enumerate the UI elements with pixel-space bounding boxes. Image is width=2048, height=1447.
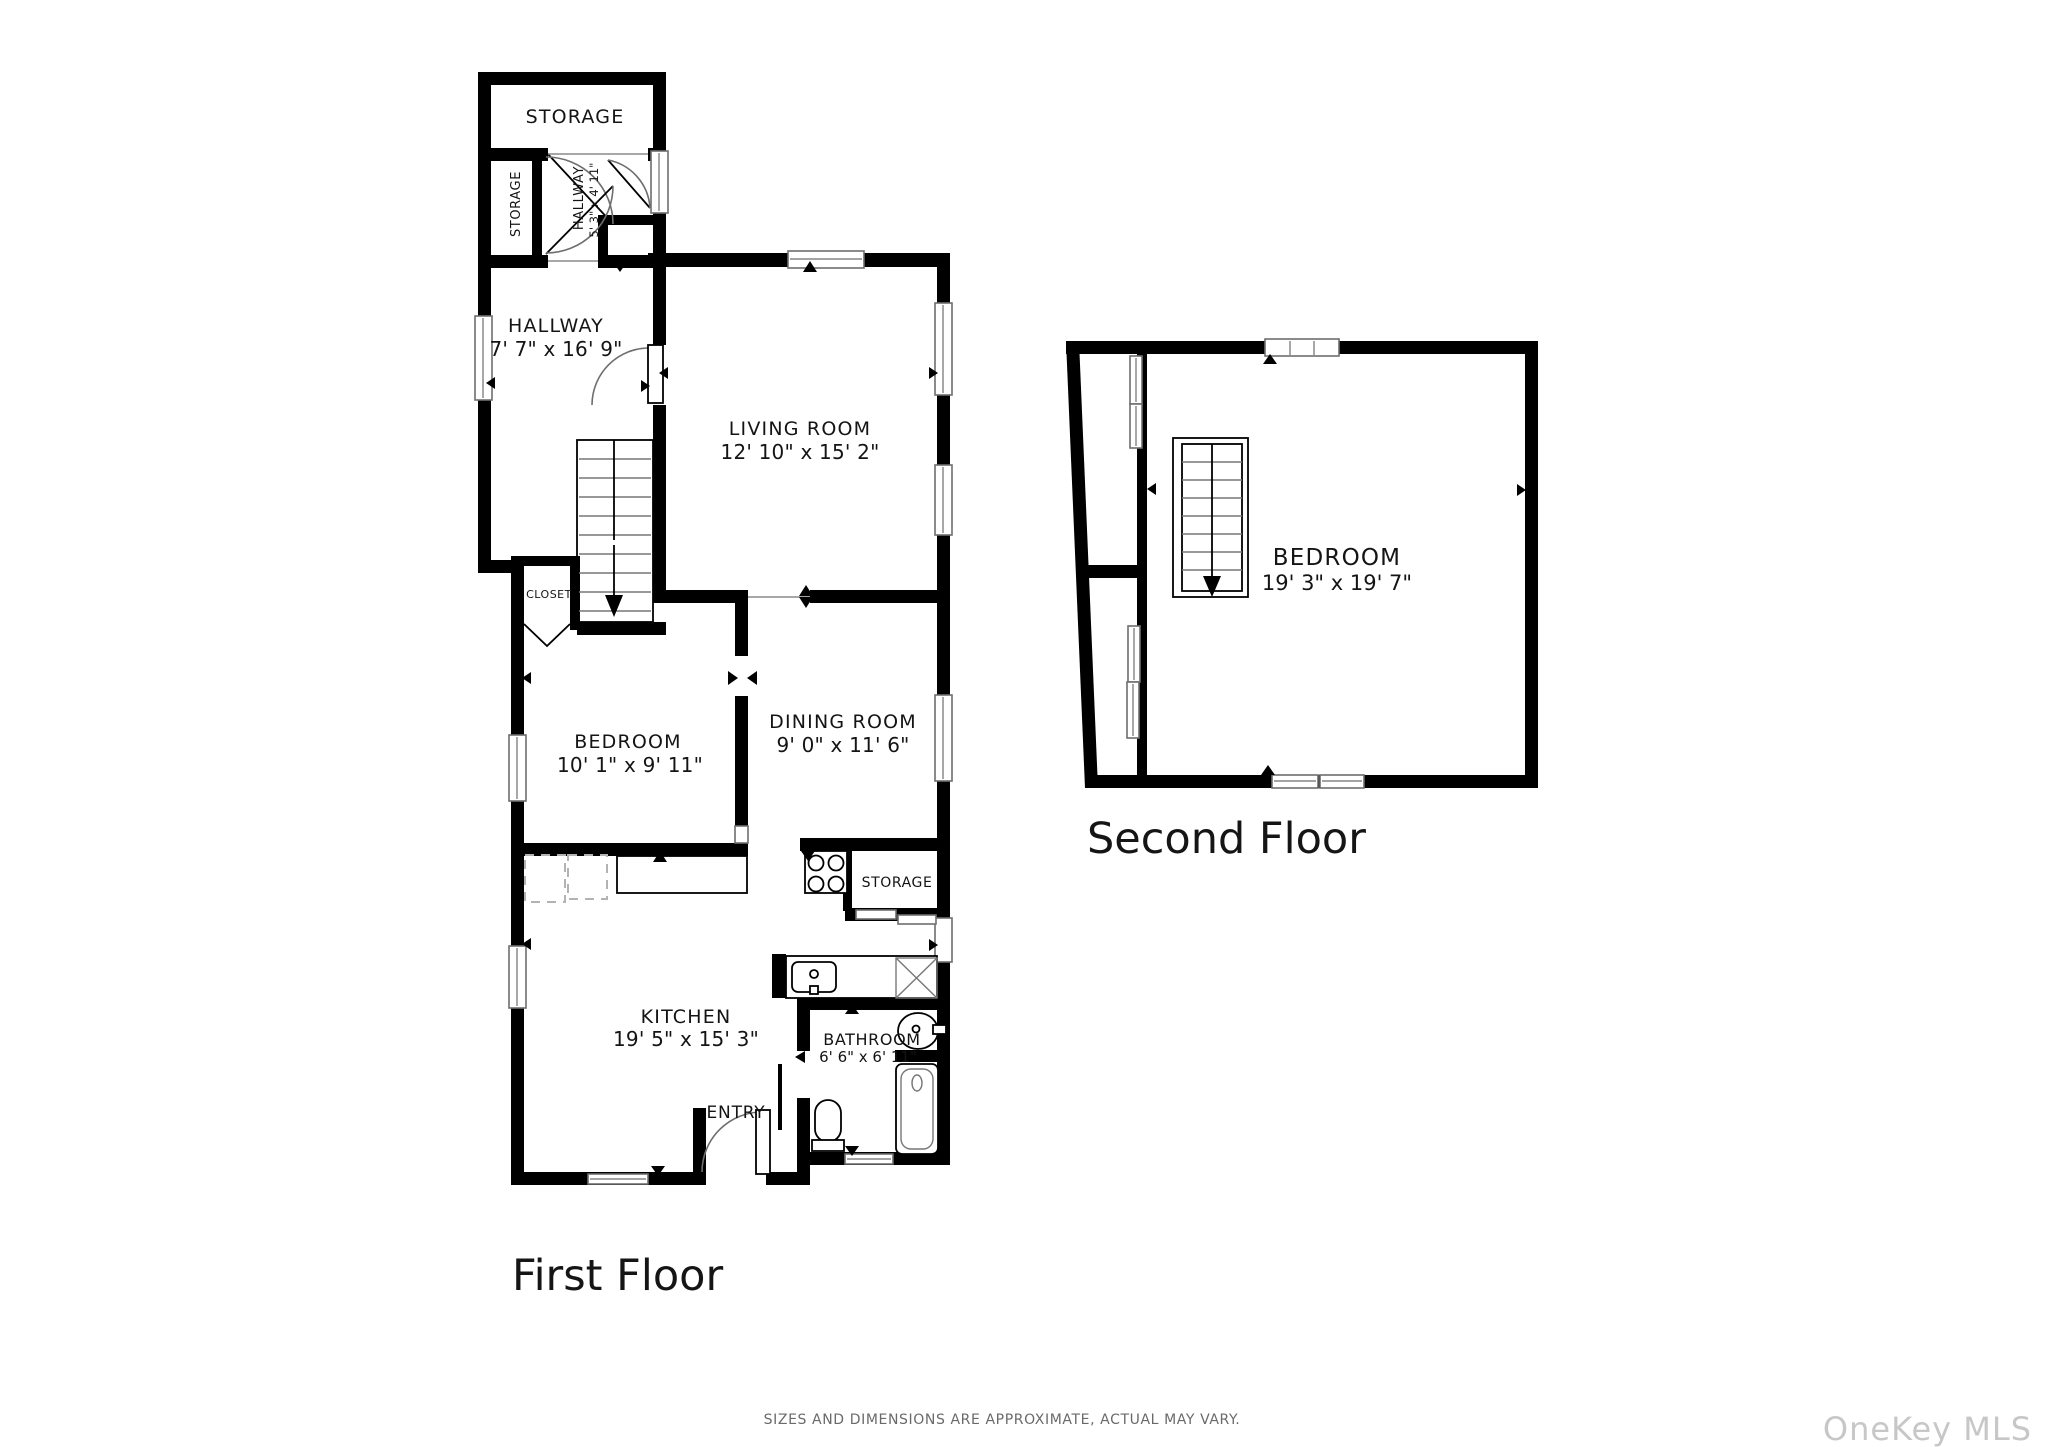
entry-label: ENTRY xyxy=(707,1103,766,1123)
watermark-text: OneKey MLS xyxy=(1823,1410,2032,1447)
upper-hallway-dims: 5' 3" x 4' 11" xyxy=(587,163,601,238)
bedroom-label: BEDROOM xyxy=(574,731,682,753)
disclaimer-text: SIZES AND DIMENSIONS ARE APPROXIMATE, AC… xyxy=(764,1412,1241,1428)
living-room-label: LIVING ROOM xyxy=(729,418,871,440)
page: STORAGE STORAGE HALLWAY 5' 3" x 4' 11" H… xyxy=(0,0,2048,1447)
bedroom2-label: BEDROOM xyxy=(1273,545,1401,571)
bathroom-dims: 6' 6" x 6' 11" xyxy=(819,1048,917,1066)
second-floor-title: Second Floor xyxy=(1087,814,1366,864)
bathroom-label: BATHROOM xyxy=(823,1030,920,1049)
living-room-dims: 12' 10" x 15' 2" xyxy=(721,440,880,464)
kitchen-fixtures xyxy=(525,851,937,998)
second-floor-labels: BEDROOM 19' 3" x 19' 7" xyxy=(1262,545,1412,595)
dining-room-dims: 9' 0" x 11' 6" xyxy=(776,733,909,757)
stairs-icon xyxy=(1173,438,1248,597)
floor-plan-canvas: STORAGE STORAGE HALLWAY 5' 3" x 4' 11" H… xyxy=(0,0,2048,1447)
hallway-label: HALLWAY xyxy=(508,315,604,337)
kitchen-dims: 19' 5" x 15' 3" xyxy=(613,1027,759,1051)
bathtub-icon xyxy=(896,1064,938,1154)
first-floor-title: First Floor xyxy=(512,1251,723,1301)
dashed-appliance-outline xyxy=(568,855,607,899)
kitchen-counter xyxy=(617,856,747,893)
second-floor: BEDROOM 19' 3" x 19' 7" xyxy=(1066,339,1538,788)
kitchen-storage-label: STORAGE xyxy=(862,875,933,891)
toilet-icon xyxy=(812,1100,844,1151)
dashed-appliance-outline xyxy=(525,855,565,902)
dining-room-label: DINING ROOM xyxy=(769,711,917,733)
upper-hallway-label: HALLWAY xyxy=(572,166,587,230)
bedroom2-dims: 19' 3" x 19' 7" xyxy=(1262,571,1412,595)
kitchen-label: KITCHEN xyxy=(641,1006,732,1028)
closet-label: CLOSET xyxy=(526,588,572,601)
storage-top-label: STORAGE xyxy=(526,106,625,128)
storage-closet-label: STORAGE xyxy=(509,171,524,237)
stove-icon xyxy=(805,851,847,893)
bedroom-dims: 10' 1" x 9' 11" xyxy=(557,753,703,777)
first-floor: STORAGE STORAGE HALLWAY 5' 3" x 4' 11" H… xyxy=(475,72,952,1185)
kitchen-sink-icon xyxy=(792,962,836,994)
hallway-dims: 7' 7" x 16' 9" xyxy=(489,337,622,361)
stairs-icon xyxy=(577,440,653,622)
